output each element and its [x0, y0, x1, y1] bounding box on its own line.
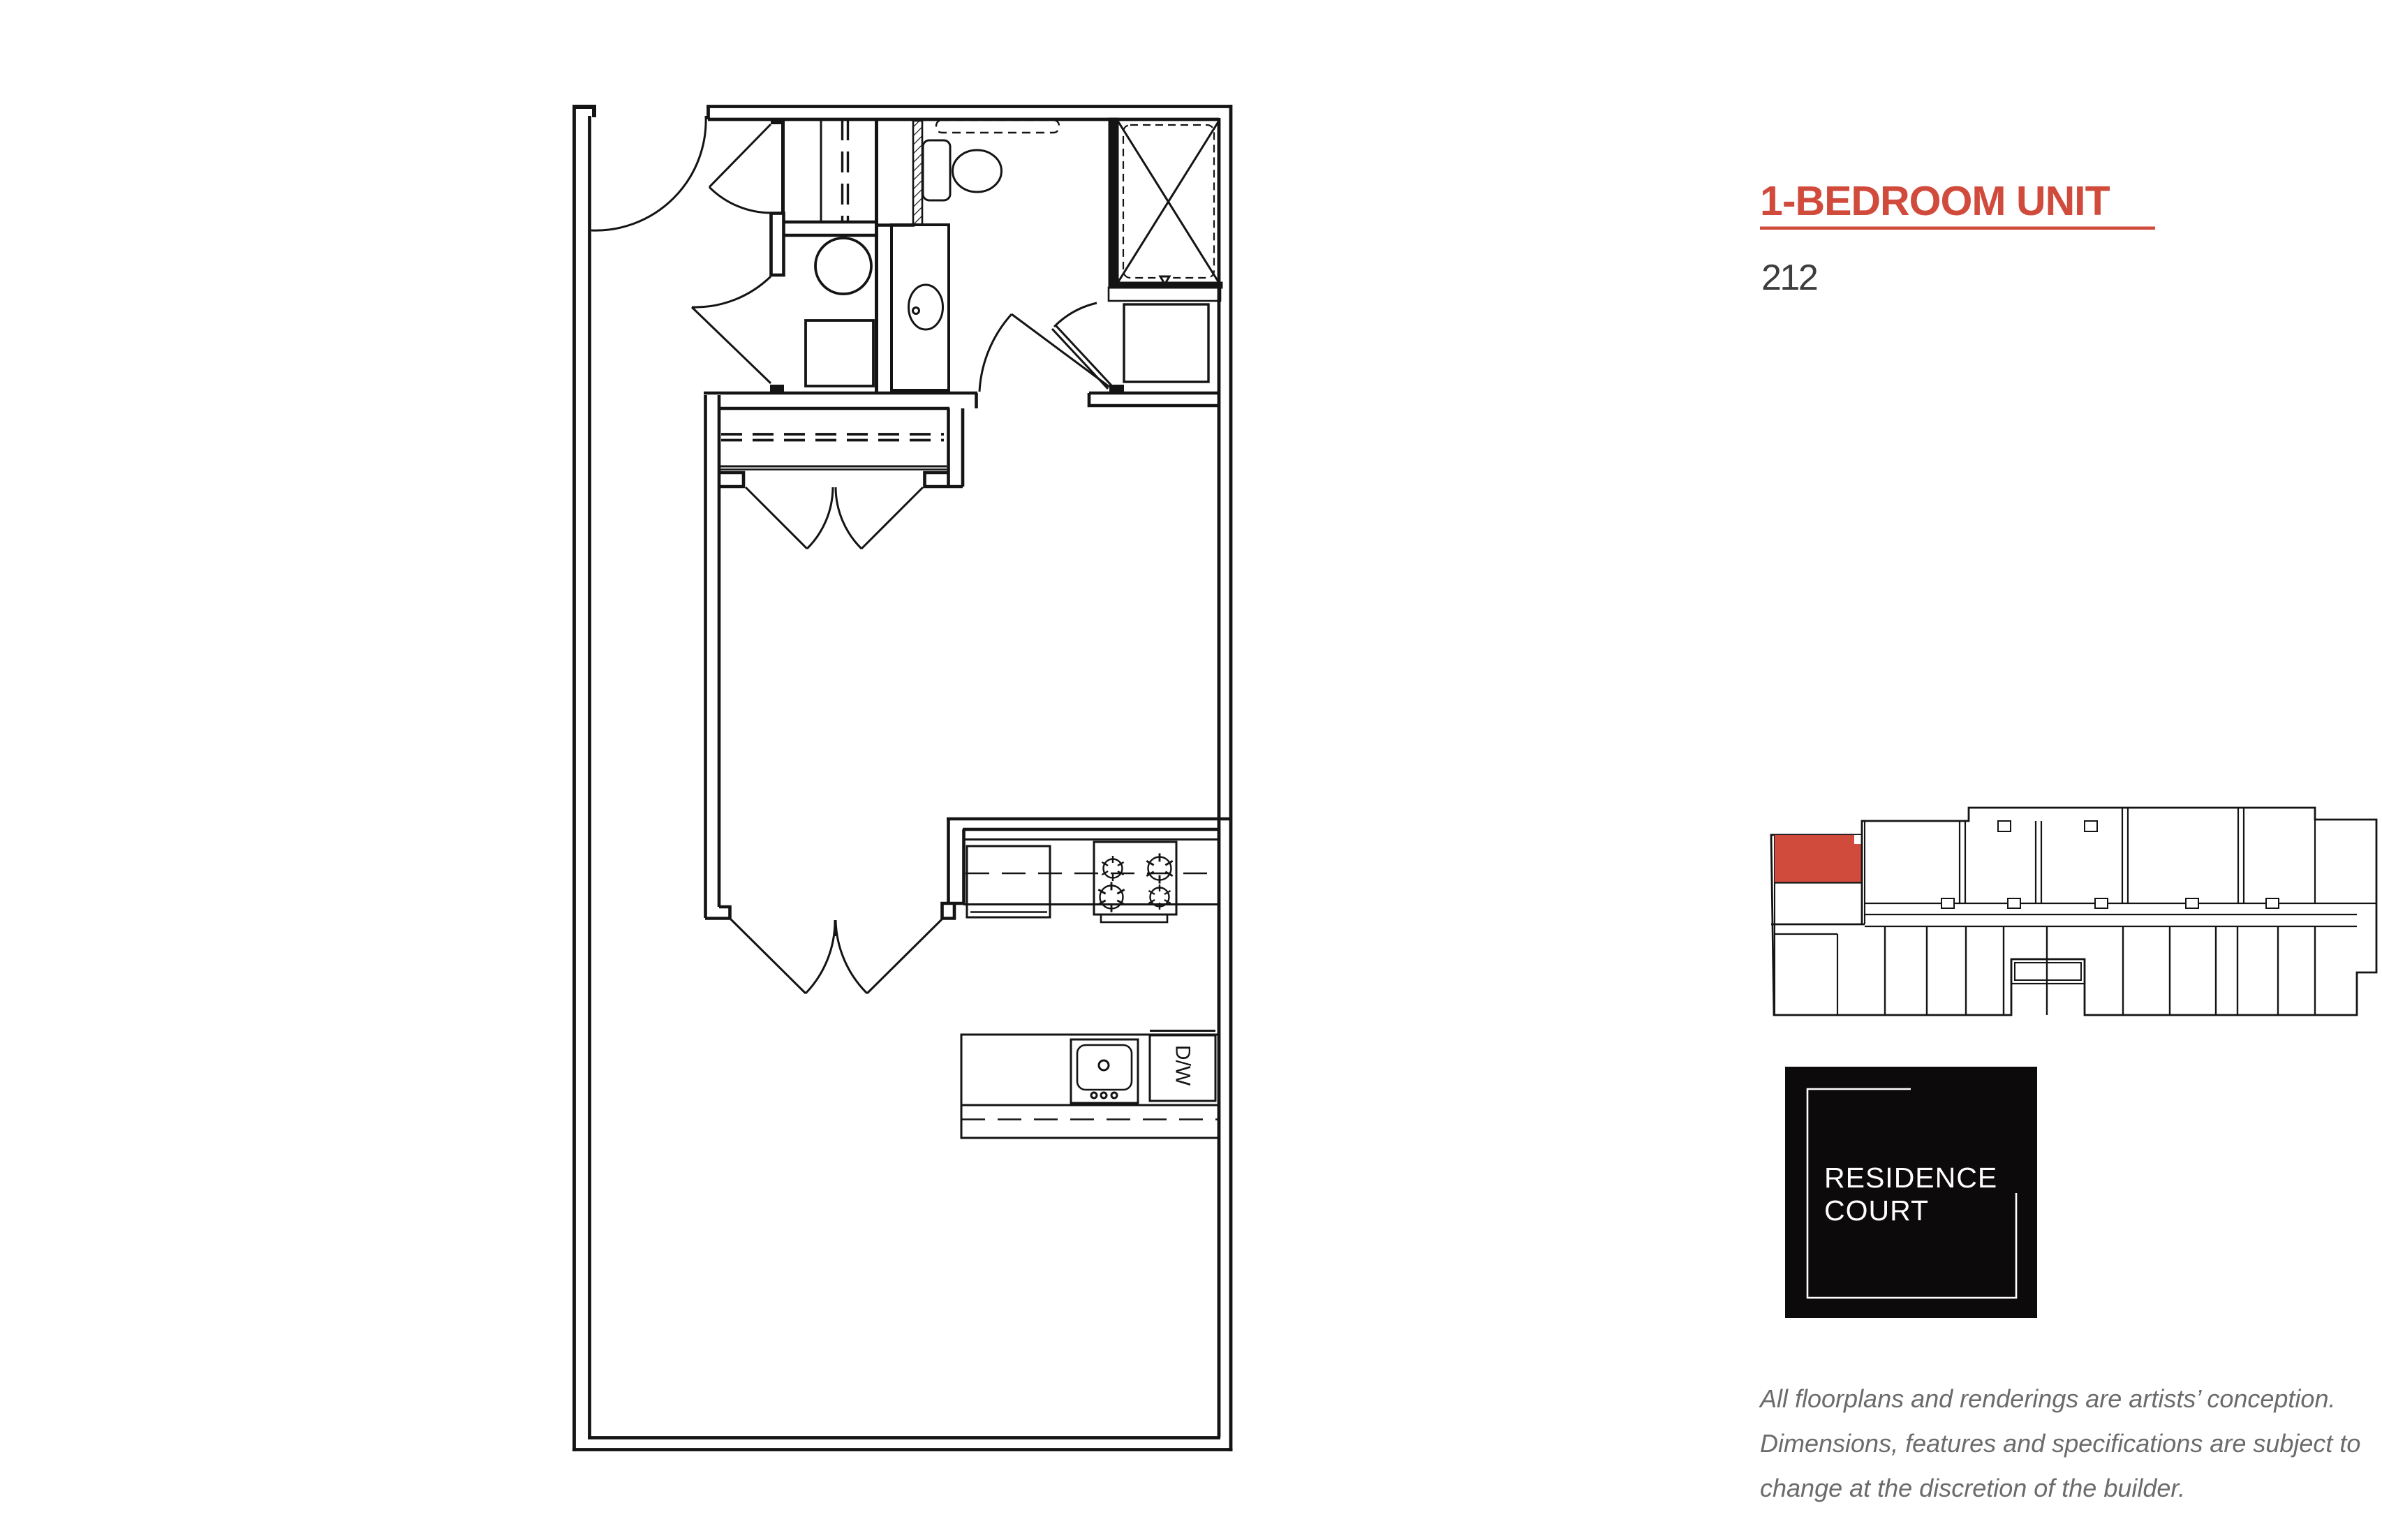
svg-text:Dimensions, features and speci: Dimensions, features and specifications …	[1760, 1429, 2360, 1458]
svg-text:RESIDENCE: RESIDENCE	[1824, 1162, 1997, 1194]
svg-text:D/W: D/W	[1171, 1045, 1194, 1086]
svg-text:change at the discretion of th: change at the discretion of the builder.	[1760, 1474, 2185, 1502]
svg-text:All floorplans and renderings: All floorplans and renderings are artist…	[1759, 1384, 2335, 1413]
svg-text:1-BEDROOM UNIT: 1-BEDROOM UNIT	[1760, 178, 2110, 224]
svg-text:212: 212	[1761, 258, 1817, 298]
svg-text:COURT: COURT	[1824, 1194, 1929, 1227]
